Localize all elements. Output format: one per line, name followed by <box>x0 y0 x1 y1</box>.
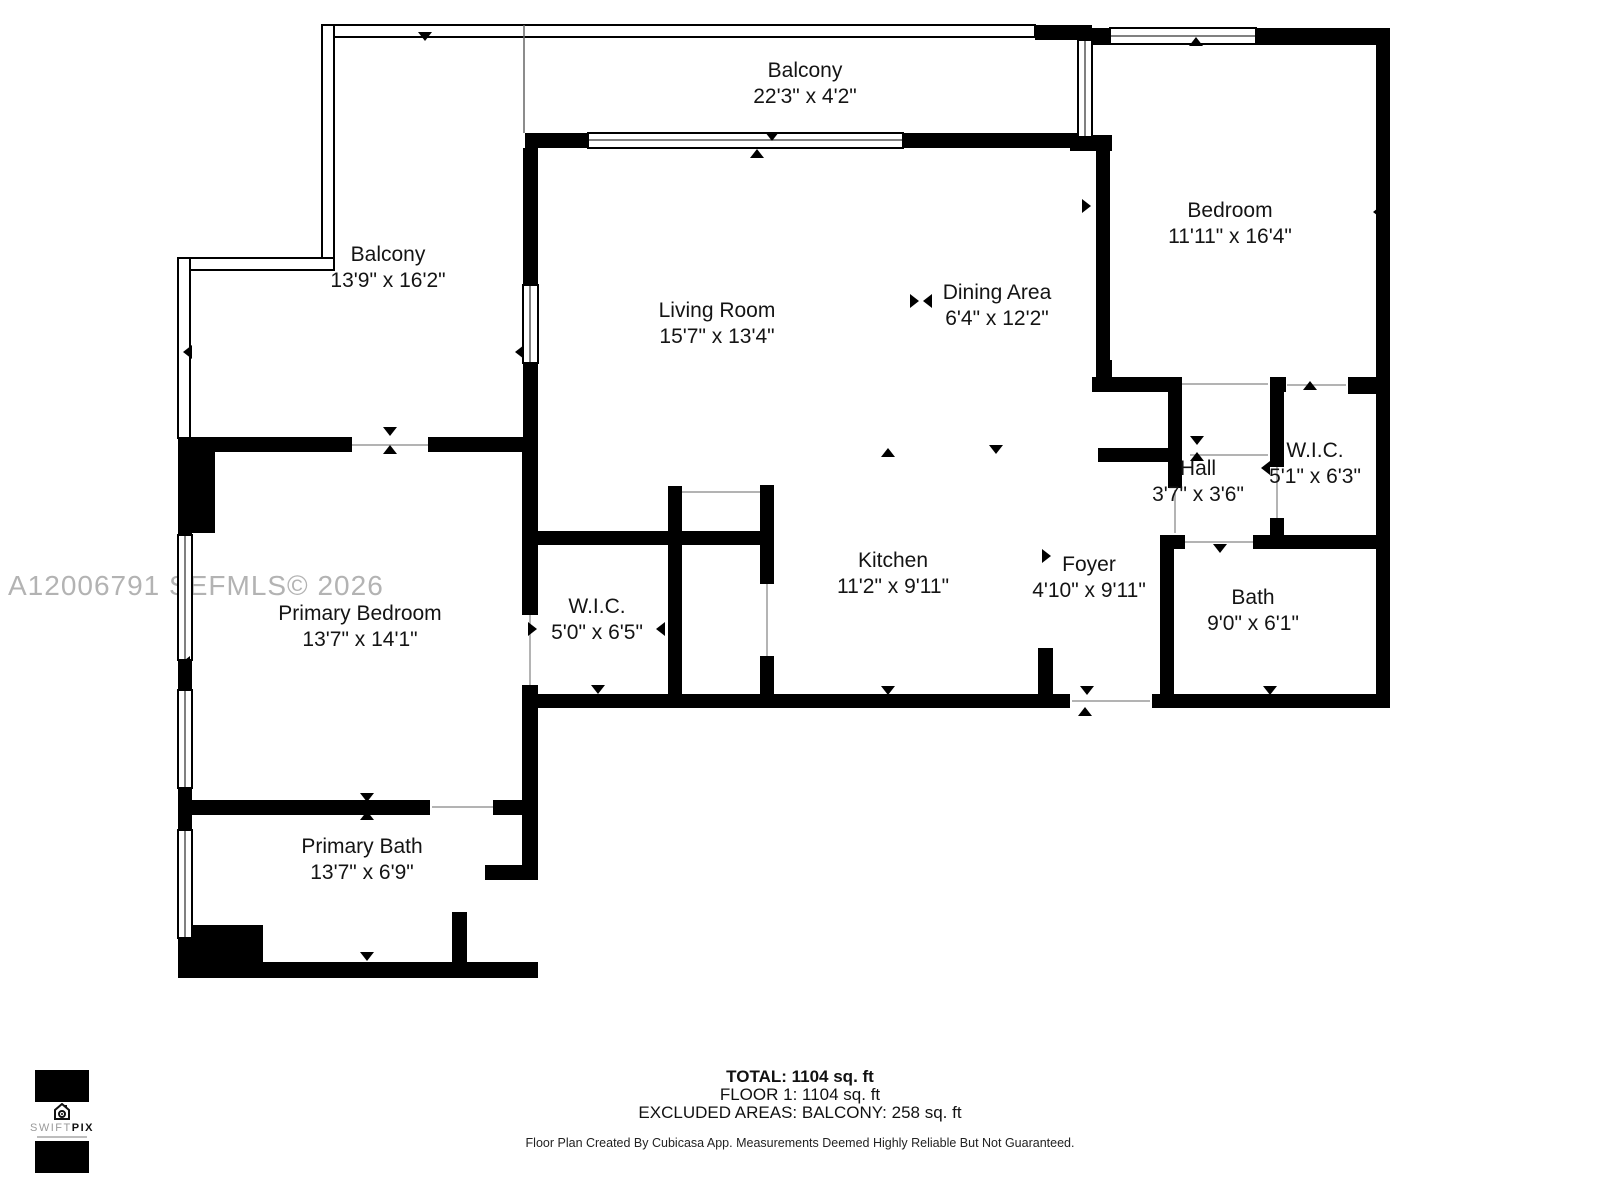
room-dims: 9'0" x 6'1" <box>1207 611 1299 637</box>
swiftpix-logo: SWIFTPIX <box>35 1070 89 1173</box>
room-dims: 11'11" x 16'4" <box>1168 224 1292 250</box>
room-label-primary-bedroom: Primary Bedroom 13'7" x 14'1" <box>278 601 441 653</box>
room-dims: 4'10" x 9'11" <box>1032 578 1146 604</box>
room-dims: 13'7" x 6'9" <box>301 860 422 886</box>
room-name: W.I.C. <box>551 594 643 620</box>
floor-area: FLOOR 1: 1104 sq. ft <box>0 1086 1600 1104</box>
room-name: Living Room <box>659 298 776 324</box>
room-label-primary-bath: Primary Bath 13'7" x 6'9" <box>301 834 422 886</box>
room-label-bath: Bath 9'0" x 6'1" <box>1207 585 1299 637</box>
total-area: TOTAL: 1104 sq. ft <box>0 1068 1600 1086</box>
house-camera-icon <box>53 1103 71 1121</box>
room-dims: 22'3" x 4'2" <box>753 84 857 110</box>
room-label-living-room: Living Room 15'7" x 13'4" <box>659 298 776 350</box>
room-name: Bath <box>1207 585 1299 611</box>
room-name: Kitchen <box>837 548 949 574</box>
room-dims: 13'9" x 16'2" <box>330 268 445 294</box>
room-name: Dining Area <box>943 280 1052 306</box>
logo-bottom-block <box>35 1141 89 1173</box>
room-name: Hall <box>1152 456 1244 482</box>
floor-plan-page: A12006791 SEFMLS© 2026 <box>0 0 1600 1200</box>
room-dims: 5'0" x 6'5" <box>551 620 643 646</box>
logo-tagline-bar <box>37 1136 87 1138</box>
room-dims: 5'1" x 6'3" <box>1269 464 1361 490</box>
railings-layer <box>178 25 1035 438</box>
room-dims: 6'4" x 12'2" <box>943 306 1052 332</box>
logo-top-block <box>35 1070 89 1102</box>
logo-brand-suffix: PIX <box>72 1122 94 1134</box>
room-dims: 3'7" x 3'6" <box>1152 482 1244 508</box>
room-dims: 11'2" x 9'11" <box>837 574 949 600</box>
room-name: Foyer <box>1032 552 1146 578</box>
disclaimer: Floor Plan Created By Cubicasa App. Meas… <box>0 1136 1600 1150</box>
room-label-dining-area: Dining Area 6'4" x 12'2" <box>943 280 1052 332</box>
room-label-foyer: Foyer 4'10" x 9'11" <box>1032 552 1146 604</box>
excluded-areas: EXCLUDED AREAS: BALCONY: 258 sq. ft <box>0 1104 1600 1122</box>
room-dims: 13'7" x 14'1" <box>278 627 441 653</box>
room-label-wic-bedroom: W.I.C. 5'1" x 6'3" <box>1269 438 1361 490</box>
room-label-bedroom: Bedroom 11'11" x 16'4" <box>1168 198 1292 250</box>
room-label-wic-primary: W.I.C. 5'0" x 6'5" <box>551 594 643 646</box>
area-summary: TOTAL: 1104 sq. ft FLOOR 1: 1104 sq. ft … <box>0 1068 1600 1150</box>
room-label-kitchen: Kitchen 11'2" x 9'11" <box>837 548 949 600</box>
room-name: Balcony <box>753 58 857 84</box>
room-label-balcony-top: Balcony 22'3" x 4'2" <box>753 58 857 110</box>
room-name: Bedroom <box>1168 198 1292 224</box>
logo-brand-prefix: SWIFT <box>30 1122 72 1134</box>
room-name: Primary Bedroom <box>278 601 441 627</box>
room-label-hall: Hall 3'7" x 3'6" <box>1152 456 1244 508</box>
room-label-balcony-left: Balcony 13'9" x 16'2" <box>330 242 445 294</box>
floorplan-drawing <box>0 0 1600 1200</box>
room-dims: 15'7" x 13'4" <box>659 324 776 350</box>
room-name: W.I.C. <box>1269 438 1361 464</box>
logo-brand: SWIFTPIX <box>30 1122 94 1134</box>
room-name: Primary Bath <box>301 834 422 860</box>
room-name: Balcony <box>330 242 445 268</box>
